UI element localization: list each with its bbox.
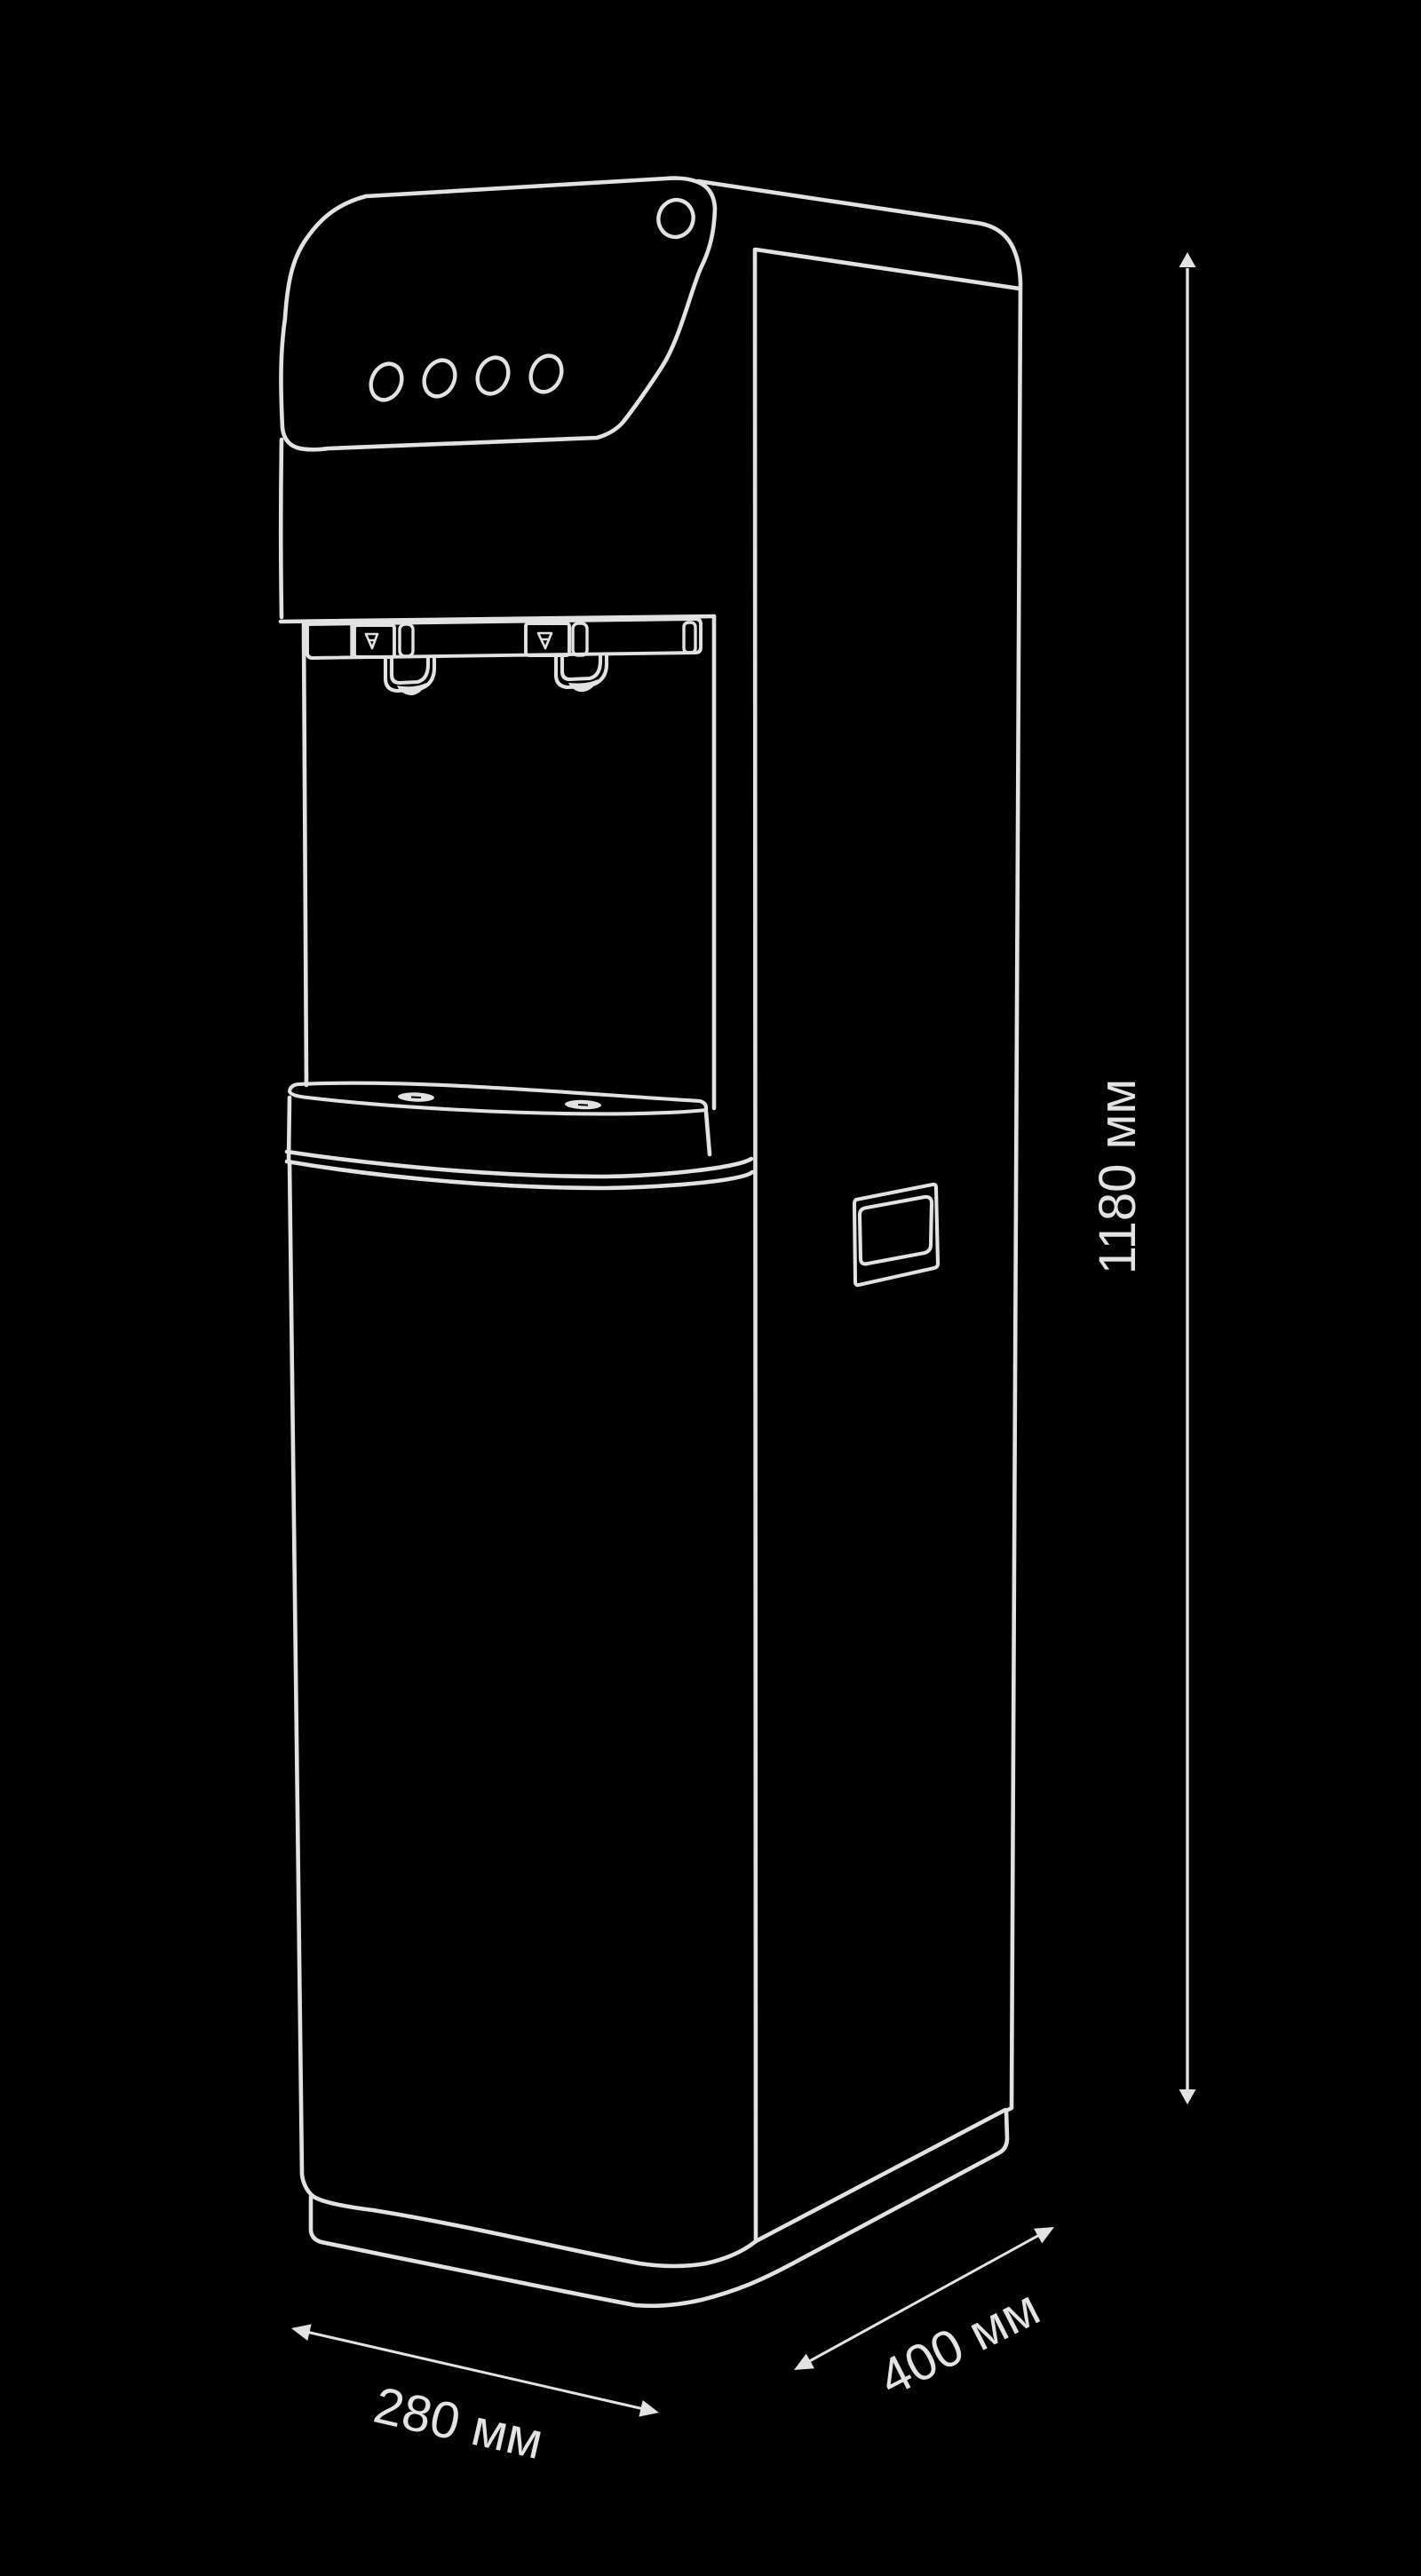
svg-text:1180 мм: 1180 мм (1089, 1079, 1147, 1275)
